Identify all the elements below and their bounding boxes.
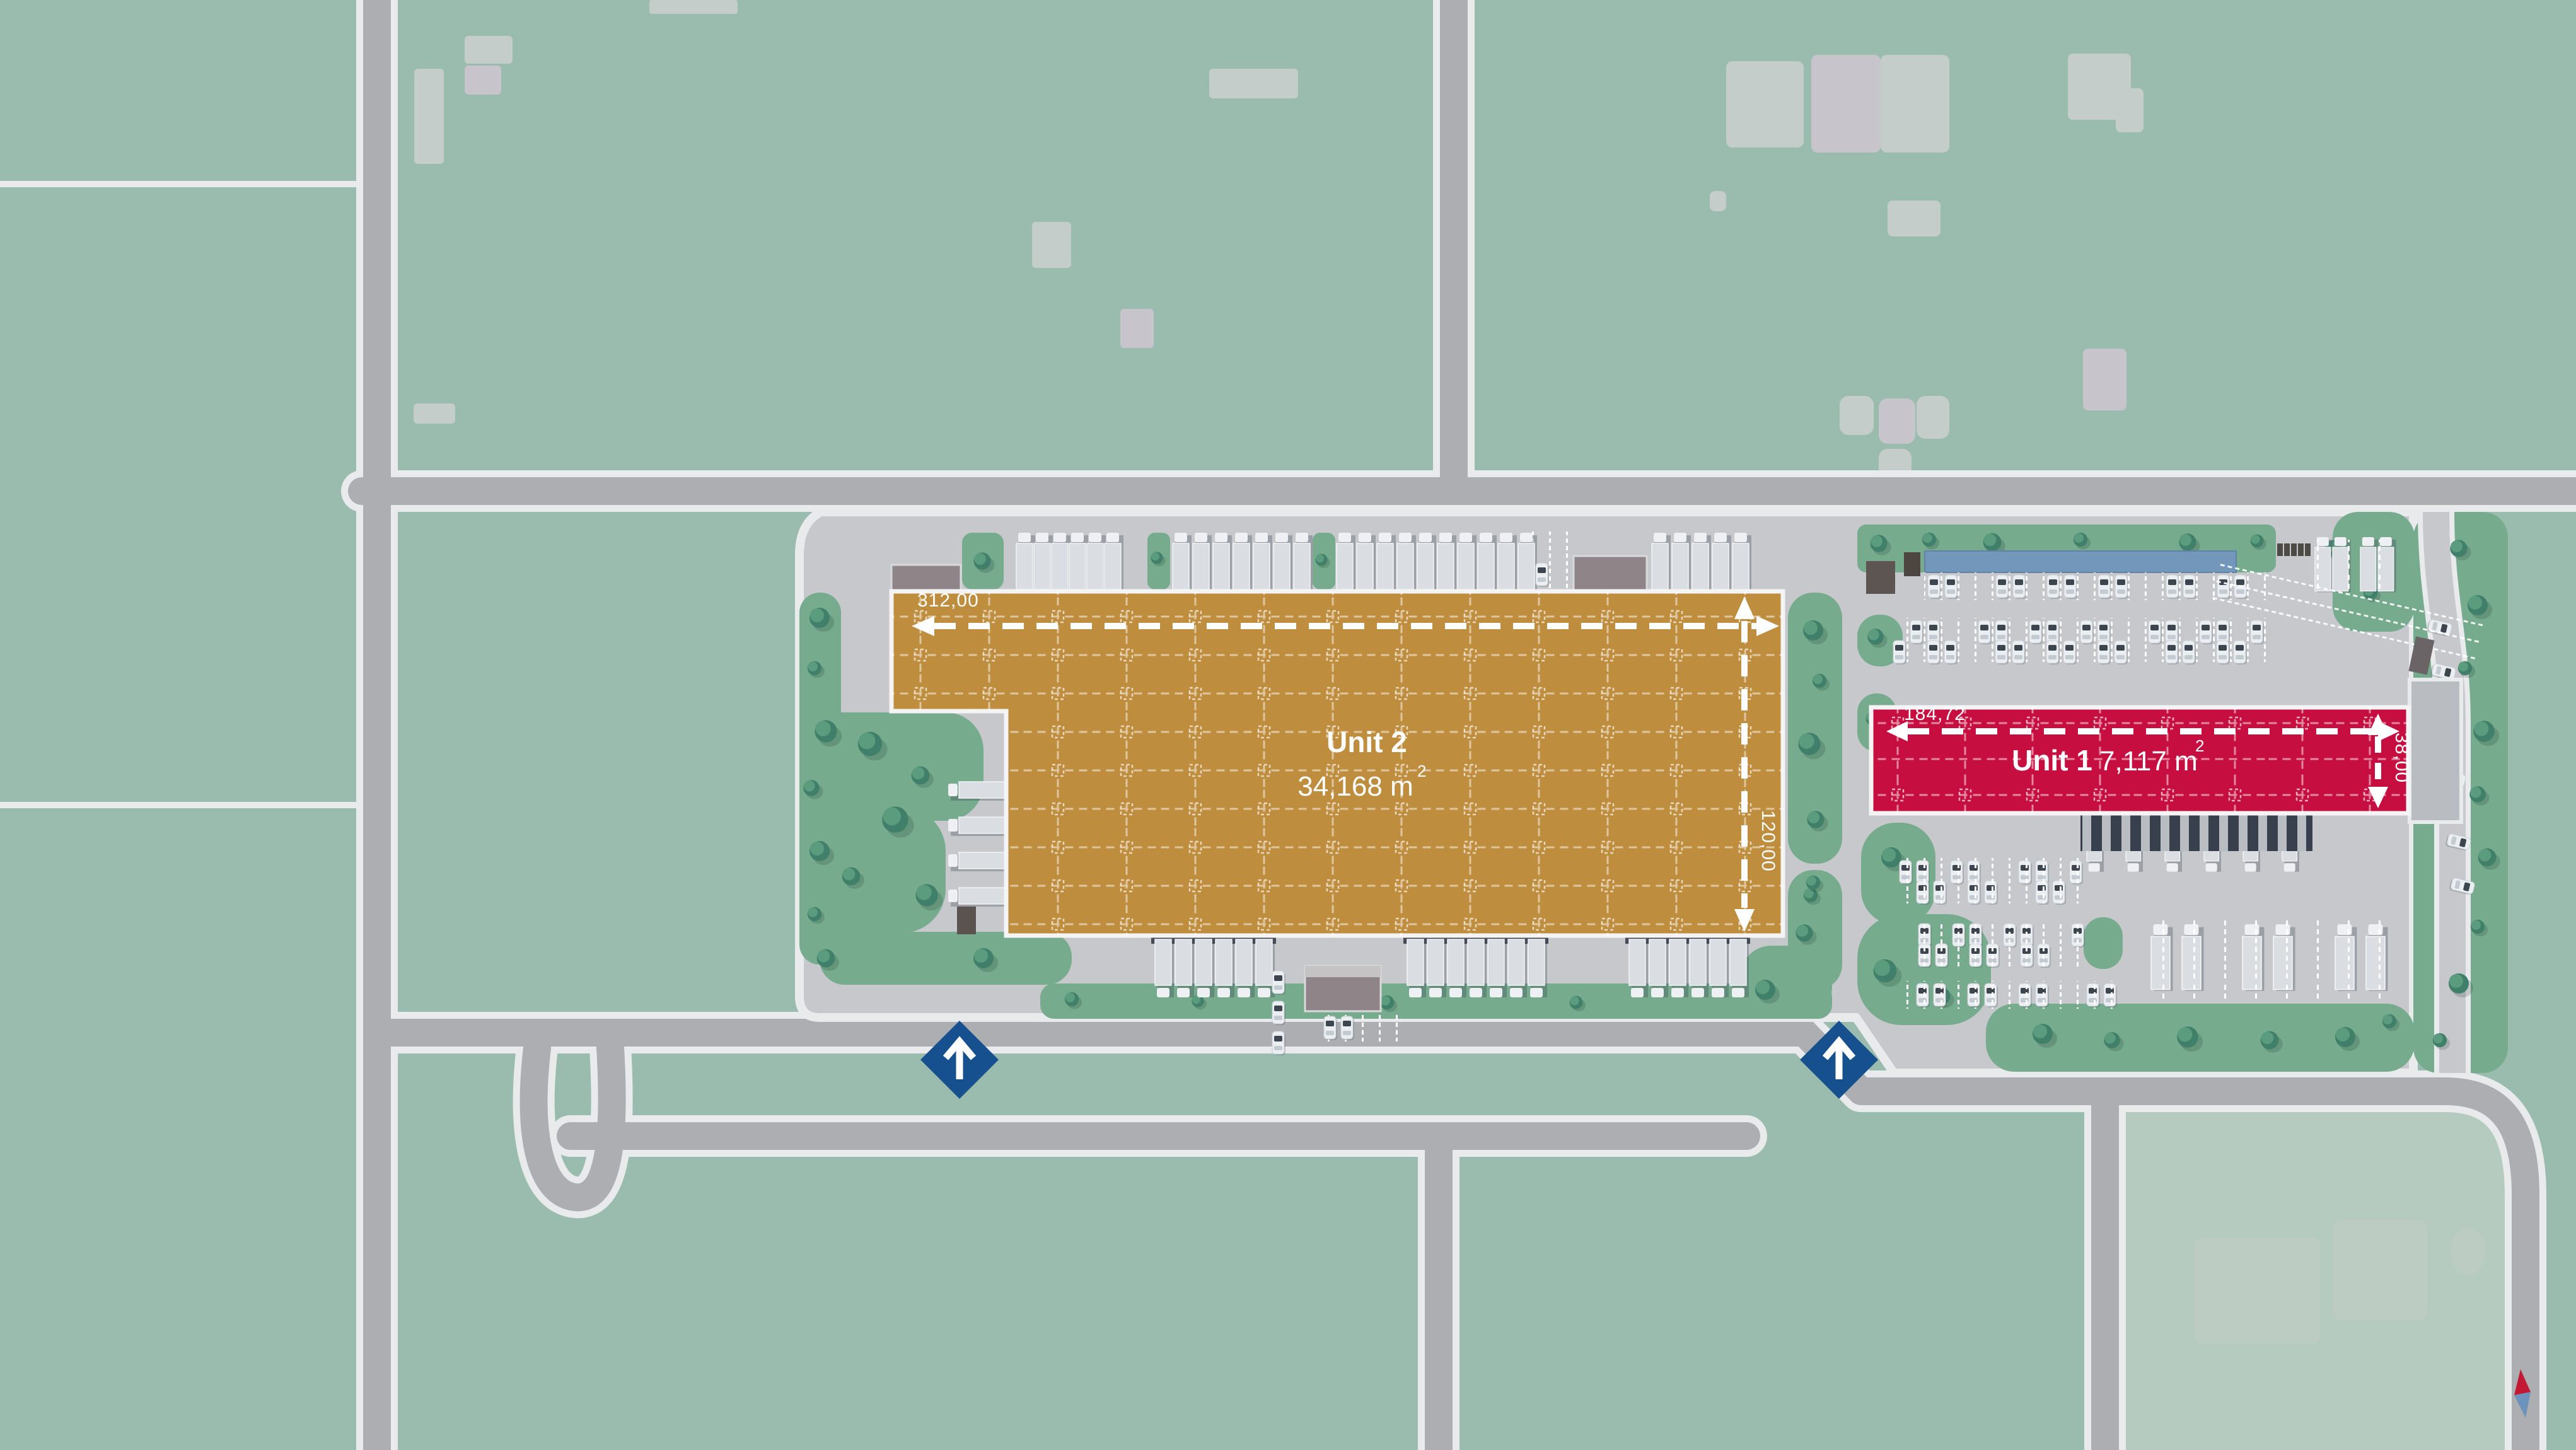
unit2-name: Unit 2 <box>1326 726 1407 758</box>
unit2-office-northwest <box>891 565 961 591</box>
unit1-area: 7,117 m <box>2099 746 2198 777</box>
unit1-bike-racks <box>2277 543 2311 556</box>
unit2-area-sup: 2 <box>1417 762 1426 780</box>
unit1-shed-b <box>1904 552 1920 576</box>
unit2-area: 34,168 m <box>1297 771 1413 802</box>
unit1-area-sup: 2 <box>2195 736 2204 755</box>
unit1-name: Unit 1 <box>2012 744 2092 777</box>
unit2-width-value: 312,00 <box>917 590 979 611</box>
unit2-column-grid <box>891 591 1783 936</box>
unit2-office-south <box>1305 966 1381 1011</box>
unit2-office-north <box>1574 556 1647 591</box>
site-plan-map: Unit 2 34,168 m 2 Unit 1 7,117 m 2 312,0… <box>0 0 2576 1450</box>
unit1-height-value: 38,00 <box>2391 733 2412 783</box>
unit1-shed-a <box>1866 561 1895 594</box>
unit2-shed <box>957 907 976 934</box>
unit2-building <box>891 591 1783 936</box>
unit1-width-value: 184,72 <box>1904 704 1966 724</box>
unit1-loading-docks <box>2080 815 2312 851</box>
unit1-gray-wing <box>2410 680 2461 822</box>
unit1-canopy <box>1925 551 2236 572</box>
unit2-height-value: 120,00 <box>1758 810 1778 872</box>
